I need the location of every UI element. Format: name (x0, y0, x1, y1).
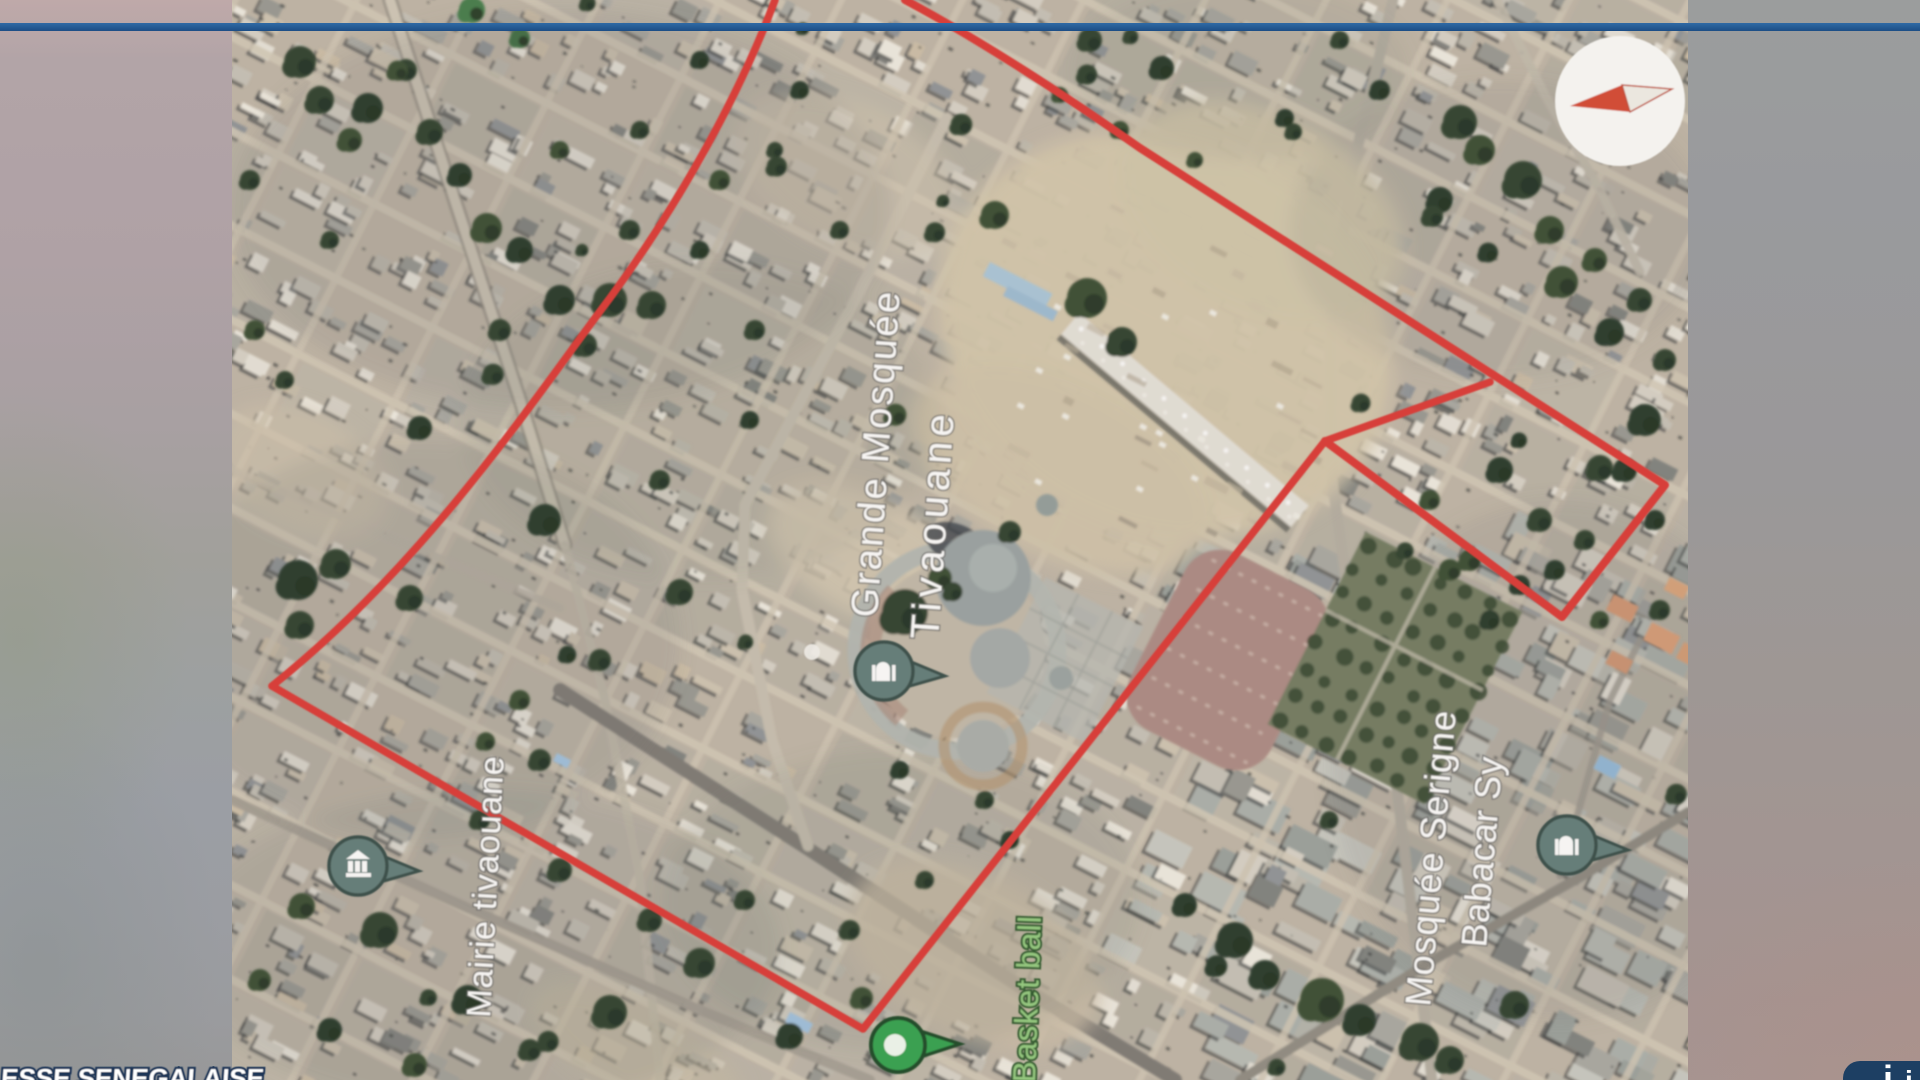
svg-text:ESSE SENEGALAISE: ESSE SENEGALAISE (0, 1066, 265, 1080)
